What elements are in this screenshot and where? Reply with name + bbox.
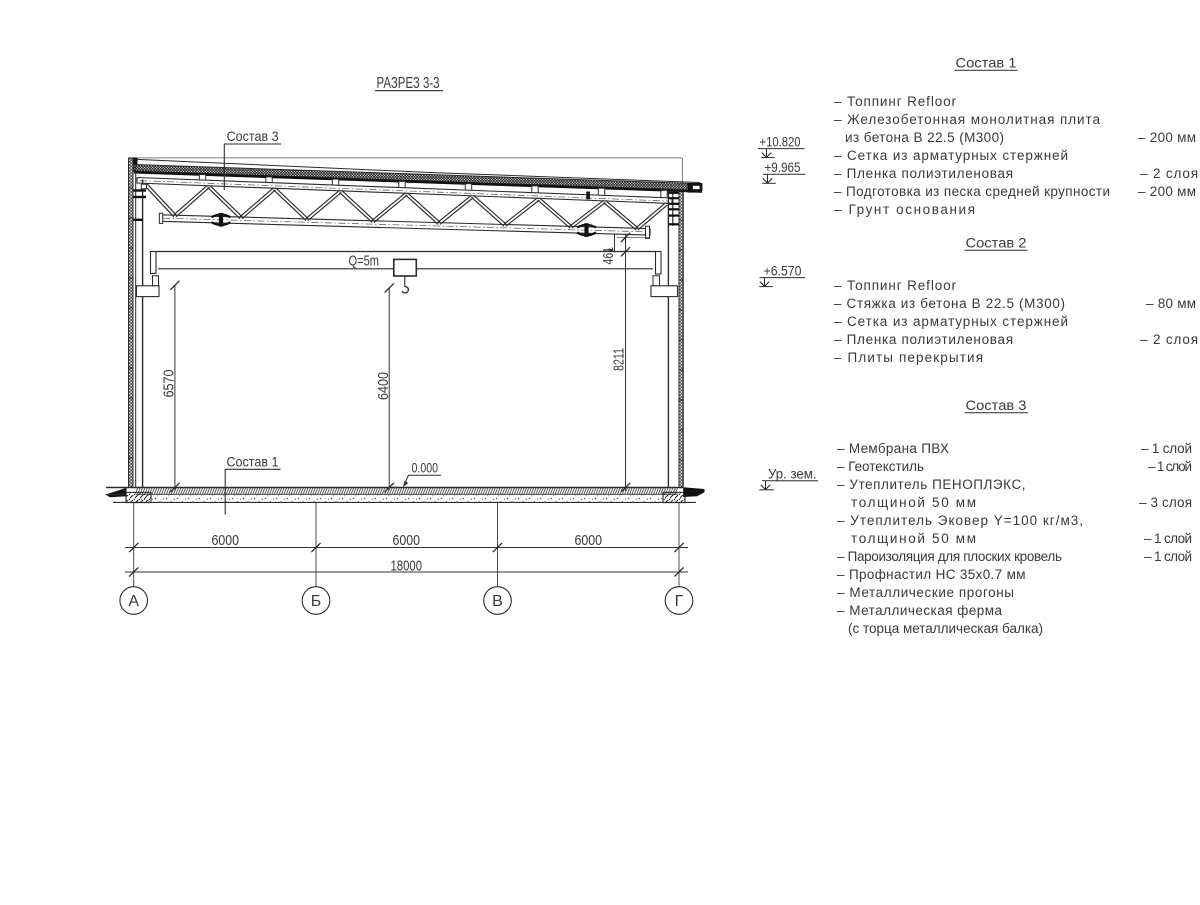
svg-text:Г: Г: [675, 593, 684, 610]
svg-text:– 2 слоя: – 2 слоя: [1140, 166, 1198, 181]
svg-text:6000: 6000: [575, 532, 603, 549]
svg-text:– 1 слой: – 1 слой: [1144, 549, 1192, 564]
svg-text:Q=5m: Q=5m: [349, 254, 380, 270]
svg-text:– Подготовка из песка средней: – Подготовка из песка средней крупности: [834, 184, 1110, 199]
svg-text:– Сетка из арматурных стержней: – Сетка из арматурных стержней: [834, 148, 1068, 163]
svg-text:+10.820: +10.820: [760, 134, 801, 149]
svg-text:– Геотекстиль: – Геотекстиль: [837, 459, 924, 474]
svg-text:Состав 3: Состав 3: [227, 128, 279, 144]
svg-text:– 80 мм: – 80 мм: [1146, 296, 1196, 311]
svg-text:0.000: 0.000: [412, 459, 439, 475]
svg-text:– 3 слоя: – 3 слоя: [1139, 495, 1192, 510]
svg-text:– Пароизоляция для плоских кро: – Пароизоляция для плоских кровель: [837, 549, 1062, 564]
svg-text:+6.570: +6.570: [764, 263, 802, 278]
svg-text:– Пленка полиэтиленовая: – Пленка полиэтиленовая: [834, 332, 1013, 347]
svg-text:Состав 1: Состав 1: [227, 453, 279, 469]
svg-text:– Сетка из арматурных стержней: – Сетка из арматурных стержней: [834, 314, 1068, 329]
svg-text:Б: Б: [311, 593, 322, 610]
svg-text:– Мембрана ПВХ: – Мембрана ПВХ: [837, 441, 949, 456]
svg-text:А: А: [128, 593, 139, 610]
svg-text:– Плиты перекрытия: – Плиты перекрытия: [834, 350, 983, 365]
svg-text:– Топпинг Refloor: – Топпинг Refloor: [834, 278, 957, 293]
svg-text:6570: 6570: [161, 370, 178, 398]
svg-text:8211: 8211: [611, 348, 628, 371]
svg-text:– Топпинг Refloor: – Топпинг Refloor: [834, 94, 957, 109]
svg-text:из бетона В 22.5 (М300): из бетона В 22.5 (М300): [845, 130, 1004, 145]
svg-text:Состав 2: Состав 2: [966, 235, 1027, 251]
svg-text:Состав 1: Состав 1: [956, 55, 1017, 71]
svg-text:РАЗРЕЗ 3-3: РАЗРЕЗ 3-3: [377, 75, 440, 92]
svg-text:6000: 6000: [212, 532, 240, 549]
svg-text:– 2 слоя: – 2 слоя: [1140, 332, 1198, 347]
svg-text:– Пленка полиэтиленовая: – Пленка полиэтиленовая: [834, 166, 1013, 181]
svg-text:– Металлическая ферма: – Металлическая ферма: [837, 603, 1002, 618]
svg-text:– Утеплитель ПЕНОПЛЭКС,: – Утеплитель ПЕНОПЛЭКС,: [837, 477, 1026, 492]
svg-text:18000: 18000: [391, 557, 423, 574]
svg-text:– 1 слой: – 1 слой: [1144, 531, 1192, 546]
svg-text:– Железобетонная монолитная п: – Железобетонная монолитная плита: [834, 112, 1100, 127]
svg-text:– Стяжка из бетона В 22.5 (М30: – Стяжка из бетона В 22.5 (М300): [834, 296, 1065, 311]
svg-text:– Утеплитель Эковер Y=100 кг/м: – Утеплитель Эковер Y=100 кг/м3,: [837, 513, 1083, 528]
svg-text:– Металлические прогоны: – Металлические прогоны: [837, 585, 1014, 600]
svg-text:– 200 мм: – 200 мм: [1138, 130, 1196, 145]
svg-text:Состав 3: Состав 3: [966, 397, 1027, 413]
svg-text:толщиной 50 мм: толщиной 50 мм: [851, 495, 976, 510]
svg-text:Ур. зем.: Ур. зем.: [768, 466, 817, 481]
svg-text:(с торца металлическая балка): (с торца металлическая балка): [848, 621, 1043, 636]
svg-text:В: В: [492, 593, 503, 610]
svg-text:– 1 слой: – 1 слой: [1141, 441, 1192, 456]
svg-text:6000: 6000: [393, 532, 421, 549]
svg-text:– 1 слой: – 1 слой: [1148, 459, 1192, 474]
svg-text:6400: 6400: [375, 372, 392, 400]
svg-text:+9.965: +9.965: [765, 160, 801, 175]
svg-text:– 200 мм: – 200 мм: [1138, 184, 1196, 199]
svg-text:– Профнастил НС 35х0.7 мм: – Профнастил НС 35х0.7 мм: [837, 567, 1026, 582]
svg-text:толщиной 50 мм: толщиной 50 мм: [851, 531, 976, 546]
svg-text:461: 461: [600, 247, 617, 265]
